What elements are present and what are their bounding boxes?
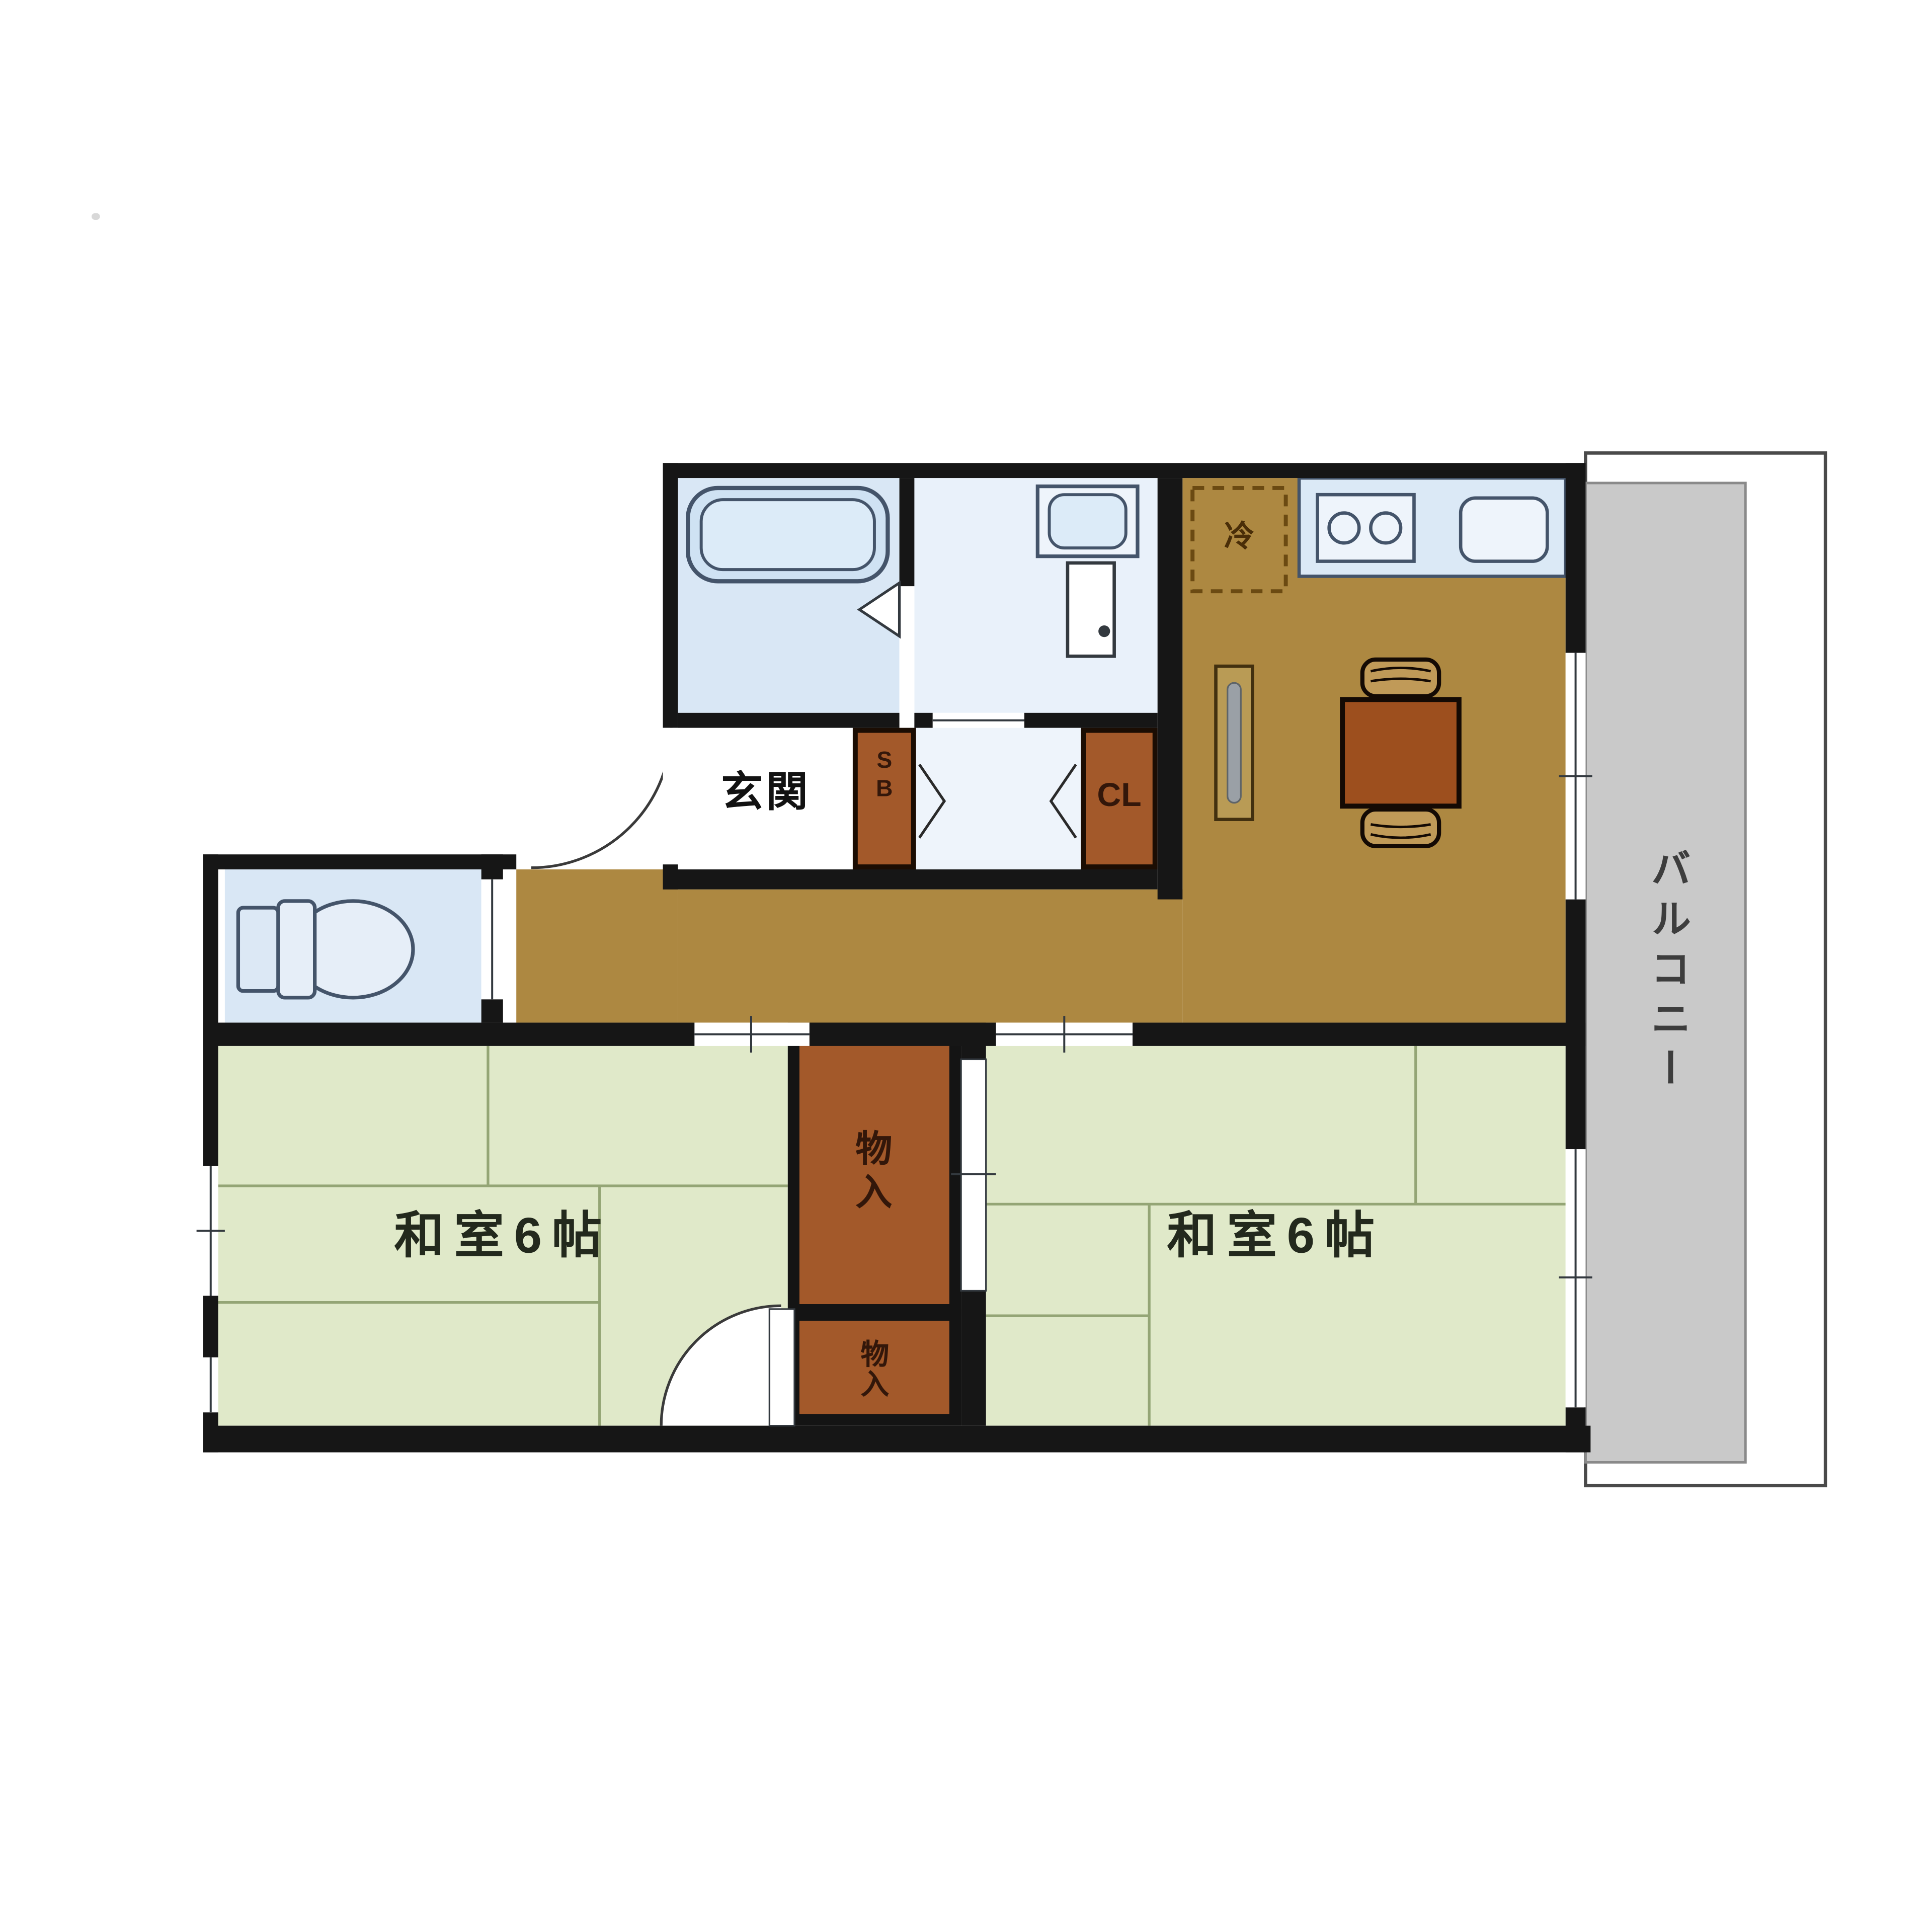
wall-segment <box>900 478 915 586</box>
genkan-label: 玄関 <box>680 769 853 817</box>
refrigerator-label: 冷 <box>1192 520 1285 554</box>
wall-segment <box>1566 463 1586 653</box>
floor-plan: 玄関 S B CL 冷 物入 物入 和室6帖 和室6帖 バルコニー <box>0 0 1932 1932</box>
entrance-opening <box>663 728 678 864</box>
wall-segment <box>961 1291 986 1426</box>
wall-segment <box>481 999 503 1022</box>
washitsu-right-label: 和室6帖 <box>1026 1209 1525 1266</box>
counter-cabinet-groove <box>1228 683 1241 802</box>
entrance-door-swing <box>531 728 671 868</box>
wall-segment <box>663 463 678 728</box>
wall-segment <box>481 854 503 879</box>
hall-floor <box>678 890 1182 1023</box>
wall-segment <box>1158 478 1183 900</box>
wall-segment <box>203 1296 218 1357</box>
scan-artifact <box>92 213 100 220</box>
closet-label: CL <box>1083 778 1156 816</box>
wall-segment <box>1133 1023 1585 1046</box>
door-knob <box>1098 625 1110 637</box>
wall-segment <box>1024 713 1158 728</box>
door-leaf-icon <box>1068 563 1114 656</box>
wall-segment <box>203 854 218 1166</box>
balcony-label: バルコニー <box>1632 766 1699 1179</box>
storage-upper-label: 物入 <box>834 1079 908 1266</box>
storage-door-leaf <box>769 1309 794 1426</box>
bath-door-opening <box>900 586 915 713</box>
wall-segment <box>203 1023 695 1046</box>
toilet-tank <box>238 908 278 991</box>
bathtub-inner <box>701 500 874 570</box>
wall-segment <box>1566 900 1586 1023</box>
wall-segment <box>678 713 899 728</box>
wall-segment <box>203 1426 1591 1453</box>
kitchen-sink-icon <box>1461 498 1547 561</box>
wall-segment <box>663 869 1158 890</box>
shoe-box-label: S B <box>854 746 914 802</box>
wall-segment <box>961 1023 986 1060</box>
dining-table-icon <box>1342 699 1459 806</box>
storage-lower-label: 物入 <box>838 1322 904 1415</box>
wall-segment <box>663 463 1586 478</box>
wall-segment <box>203 854 516 869</box>
toilet-seat <box>278 901 315 998</box>
corridor-floor <box>516 869 678 1023</box>
washitsu-left-label: 和室6帖 <box>253 1209 753 1266</box>
washstand-basin <box>1050 495 1126 548</box>
wall-segment <box>914 713 932 728</box>
